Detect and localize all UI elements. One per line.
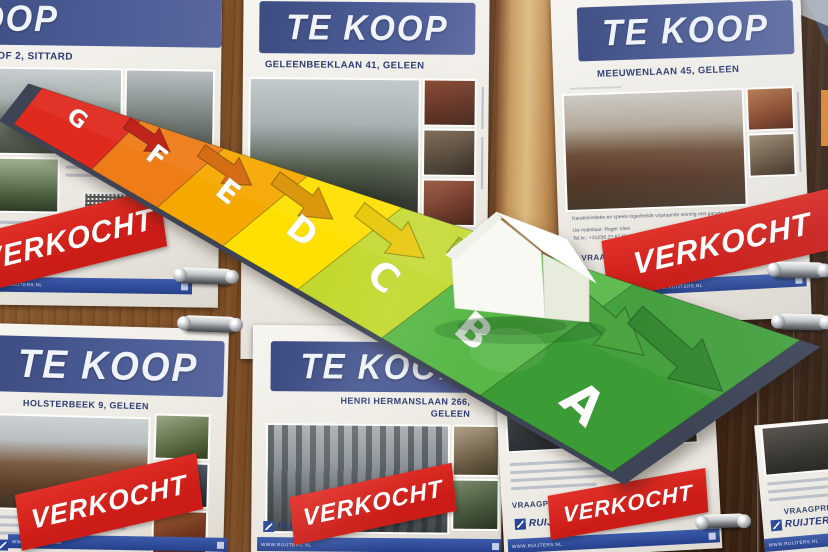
property-photo [506, 387, 631, 451]
footer-website: WWW.RUIJTERS.NL [768, 538, 818, 547]
poster-address-line2: GELEEN [290, 407, 470, 419]
orange-sliver [821, 90, 828, 146]
poster-address: OF 2, SITTARD [0, 51, 73, 63]
property-photo [125, 70, 213, 191]
te-koop-banner: TE KOOP [0, 0, 222, 48]
ruijters-logo-icon [770, 519, 782, 531]
glass-clip [178, 267, 235, 285]
te-koop-banner: TE KOOP [259, 1, 475, 55]
poster-address: HOLSTERBEEK 9, GELEEN [23, 398, 149, 411]
glass-clip [700, 513, 746, 529]
glass-clip [772, 262, 826, 279]
property-photo [156, 416, 209, 459]
poster-address-line1: HENRI HERMANSLAAN 266, [290, 395, 470, 407]
poster-address: MEEUWENLAAN 45, GELEEN [597, 64, 740, 80]
footer-bar: WWW.RUIJTERS.NL [508, 528, 720, 552]
poster-title: TE KOOP [300, 346, 463, 388]
property-photo [748, 88, 793, 130]
property-photo [0, 69, 121, 155]
ruijters-logo: RUIJTERS [770, 515, 828, 532]
te-koop-banner: TE KOOP [577, 0, 795, 62]
te-koop-banner: TE KOOP [270, 341, 492, 393]
property-photo [762, 420, 828, 475]
property-photo [634, 383, 697, 444]
poster-address: GELEENBEEKLAAN 41, GELEEN [265, 59, 424, 71]
property-photo [453, 481, 497, 529]
ruijters-logo-icon [515, 518, 527, 530]
property-photo [424, 81, 474, 125]
glass-clip [182, 315, 239, 333]
property-photo [0, 159, 58, 212]
te-koop-banner: TE KOOP [0, 335, 225, 397]
poster-geleenbeeklaan: TE KOOP GELEENBEEKLAAN 41, GELEEN [240, 0, 489, 361]
glass-clip [776, 314, 828, 331]
property-photo [749, 134, 794, 176]
property-photo [250, 79, 419, 230]
property-photo [454, 427, 498, 475]
property-photo [424, 131, 474, 175]
poster-title: TE KOOP [0, 0, 59, 41]
agency-name: RUIJTERS [784, 515, 828, 530]
price-label: VRAAGPRIJS [783, 502, 828, 516]
poster-edge-right: VRAAGPRIJS RUIJTERS WWW.RUIJTERS.NL [754, 415, 828, 552]
property-photo [424, 181, 474, 225]
poster-title: TE KOOP [17, 341, 199, 391]
property-photo [564, 90, 746, 210]
property-photo [301, 237, 383, 294]
ruijters-logo-icon [263, 521, 274, 532]
shop-window-scene: TE KOOP OF 2, SITTARD WWW.RUIJTERS.NL TE… [0, 0, 828, 552]
property-photo [389, 238, 473, 295]
poster-title: TE KOOP [286, 7, 449, 49]
poster-title: TE KOOP [601, 7, 769, 55]
footer-website: WWW.RUIJTERS.NL [512, 541, 562, 549]
footer-bar: WWW.RUIJTERS.NL [764, 528, 828, 552]
